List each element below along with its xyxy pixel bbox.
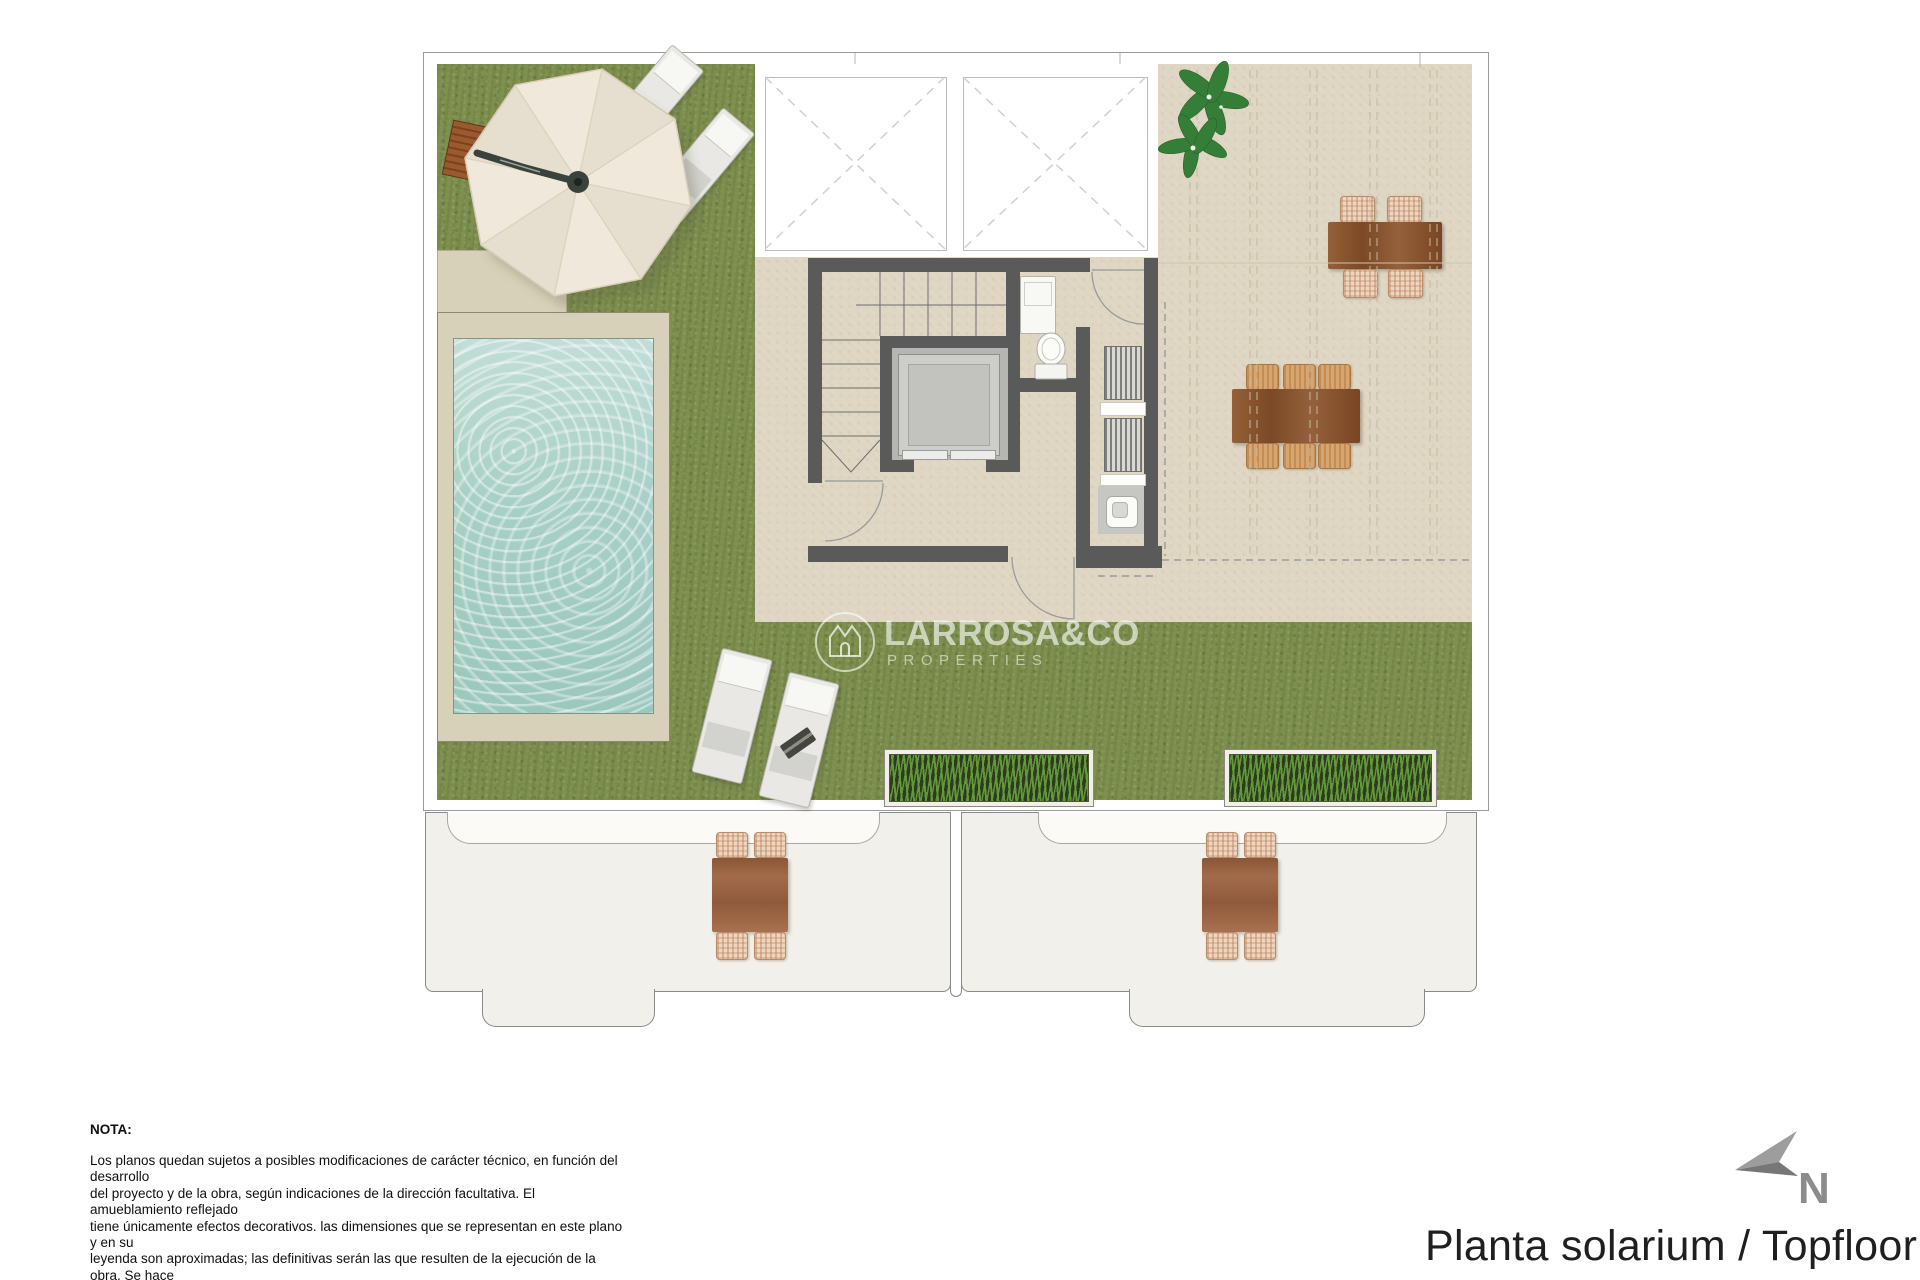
stair-direction-arrow xyxy=(822,440,880,472)
hidden-edge-dashes xyxy=(1098,302,1472,576)
pergola-guides xyxy=(1190,70,1437,556)
floor-plan-page: LARROSA&CO PROPERTIES NOTA: Los planos q… xyxy=(0,0,1920,1280)
stair-treads xyxy=(822,272,1006,472)
note-body: Los planos quedan sujetos a posibles mod… xyxy=(90,1153,630,1280)
page-title: Planta solarium / Topfloor xyxy=(1425,1222,1917,1271)
watermark-brand: LARROSA&CO xyxy=(884,614,1140,654)
note-line: leyenda son aproximadas; las definitivas… xyxy=(90,1251,630,1280)
toilet xyxy=(1035,333,1067,379)
note-line: Los planos quedan sujetos a posibles mod… xyxy=(90,1153,630,1186)
note-heading: NOTA: xyxy=(90,1122,132,1137)
band-ticks xyxy=(855,53,1420,68)
skylight-cross-2 xyxy=(963,77,1146,249)
watermark-tagline: PROPERTIES xyxy=(887,652,1048,669)
parasol xyxy=(465,69,701,308)
crown-house-icon xyxy=(817,614,873,670)
brand-logo-icon xyxy=(815,612,875,672)
potted-plant xyxy=(1157,59,1250,179)
skylight-cross-1 xyxy=(765,77,945,249)
door-swings xyxy=(825,270,1144,619)
note-line: tiene únicamente efectos decorativos. la… xyxy=(90,1219,630,1252)
note-line: del proyecto y de la obra, según indicac… xyxy=(90,1186,630,1219)
north-arrow-icon xyxy=(1735,1131,1798,1176)
north-label: N xyxy=(1798,1164,1830,1214)
